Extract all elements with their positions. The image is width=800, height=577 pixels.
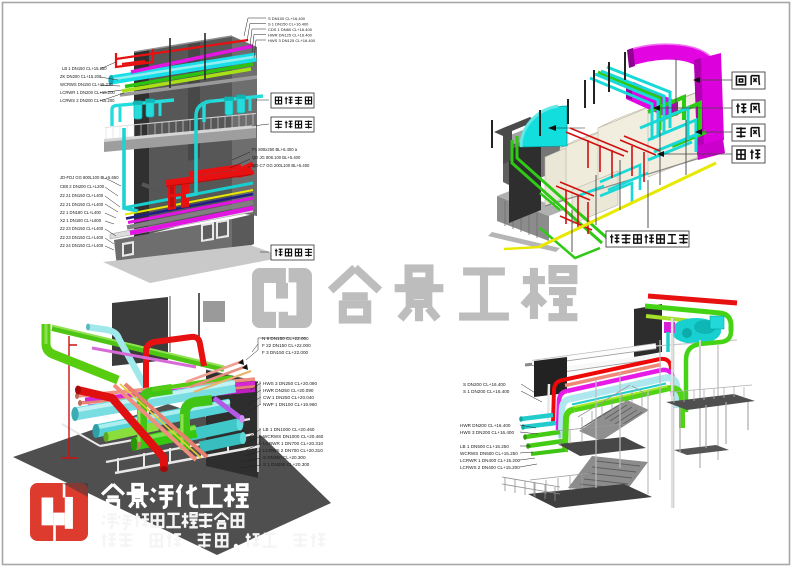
svg-text:LCRWR 1 DN400 CL+15.200: LCRWR 1 DN400 CL+15.200 (460, 458, 520, 463)
svg-text:HWS 3 DN200 CL+16.400: HWS 3 DN200 CL+16.400 (460, 430, 514, 435)
svg-text:WCRWS DN1000 CL+20.460: WCRWS DN1000 CL+20.460 (263, 434, 324, 439)
svg-text:S DN100 CL+16.400: S DN100 CL+16.400 (268, 16, 306, 21)
svg-text:JD-FDJ GG 800L100 BL+5.650: JD-FDJ GG 800L100 BL+5.650 (60, 175, 119, 180)
svg-text:HWS 3 DN250 CL+20.090: HWS 3 DN250 CL+20.090 (263, 381, 317, 386)
svg-text:CW 1 DN250 CL+20.040: CW 1 DN250 CL+20.040 (263, 395, 314, 400)
svg-text:S 1 DN150 CL+16.400: S 1 DN150 CL+16.400 (268, 22, 309, 27)
svg-text:LB 1 DN500 CL+15.250: LB 1 DN500 CL+15.250 (460, 444, 509, 449)
svg-text:Z2 1 DN180 CL+L400: Z2 1 DN180 CL+L400 (60, 210, 102, 215)
svg-text:F 3 DN150 CL+22.000: F 3 DN150 CL+22.000 (262, 350, 309, 355)
svg-text:X2 1 DN180 CL+L600: X2 1 DN180 CL+L600 (60, 218, 102, 223)
svg-text:LCRWR 1 DN200 CL+15.200: LCRWR 1 DN200 CL+15.200 (60, 90, 115, 95)
svg-text:P1 808x250 BL+6.400 a: P1 808x250 BL+6.400 a (252, 147, 298, 152)
svg-text:LCRWS 2 DN700 CL+20.310: LCRWS 2 DN700 CL+20.310 (263, 448, 323, 453)
svg-text:Z2 23 DN150 CL+L400: Z2 23 DN150 CL+L400 (60, 235, 104, 240)
svg-text:NWP 1 DN100 CL+19.960: NWP 1 DN100 CL+19.960 (263, 402, 317, 407)
svg-text:LCRWS 2 DN200 CL+15.200: LCRWS 2 DN200 CL+15.200 (60, 98, 115, 103)
svg-text:S 1 DN200 CL+16.400: S 1 DN200 CL+16.400 (463, 389, 510, 394)
svg-text:LB 1 DN150 CL+15.250: LB 1 DN150 CL+15.250 (62, 66, 107, 71)
svg-text:WCRWS DN150 CL+15.230: WCRWS DN150 CL+15.230 (60, 82, 113, 87)
svg-text:CDS 1 DN80 CL+16.400: CDS 1 DN80 CL+16.400 (268, 27, 313, 32)
svg-text:QD JG 808.100 BL+5.400: QD JG 808.100 BL+5.400 (252, 155, 301, 160)
svg-text:LCRWR 1 DN700 CL+20.310: LCRWR 1 DN700 CL+20.310 (263, 441, 323, 446)
svg-text:ZK DN200 CL+15.200: ZK DN200 CL+15.200 (60, 74, 102, 79)
svg-text:HWR DN125 CL+16.400: HWR DN125 CL+16.400 (268, 33, 313, 38)
svg-text:F 22 DN150 CL+22.000: F 22 DN150 CL+22.000 (262, 343, 311, 348)
svg-text:HWS 3 DN125 CL+16.400: HWS 3 DN125 CL+16.400 (268, 38, 316, 43)
svg-text:LCRWS 2 DN400 CL+15.200: LCRWS 2 DN400 CL+15.200 (460, 465, 520, 470)
svg-text:QD-C7 GG 200L100 BL+5.400: QD-C7 GG 200L100 BL+5.400 (252, 163, 310, 168)
svg-text:Z2 24 DN150 CL+L400: Z2 24 DN150 CL+L400 (60, 243, 104, 248)
svg-text:S 1 DN250 CL+20.300: S 1 DN250 CL+20.300 (263, 462, 310, 467)
svg-text:Z2 21 DN150 CL+L400: Z2 21 DN150 CL+L400 (60, 193, 104, 198)
svg-text:HWR DN250 CL+20.090: HWR DN250 CL+20.090 (263, 388, 314, 393)
svg-text:S DN350 CL+20.300: S DN350 CL+20.300 (263, 455, 306, 460)
svg-text:HWR DN200 CL+16.400: HWR DN200 CL+16.400 (460, 423, 511, 428)
svg-text:LB 1 DN1000 CL+20.460: LB 1 DN1000 CL+20.460 (263, 427, 315, 432)
svg-text:S DN200 CL+16.400: S DN200 CL+16.400 (463, 382, 506, 387)
svg-text:CB0 2 DN200 CL+L200: CB0 2 DN200 CL+L200 (60, 184, 105, 189)
svg-text:N 9 DN150 CL+22.000: N 9 DN150 CL+22.000 (262, 336, 309, 341)
svg-text:WCRWS DN500 CL+15.250: WCRWS DN500 CL+15.250 (460, 451, 518, 456)
svg-text:Z2 21 DN150 CL+L400: Z2 21 DN150 CL+L400 (60, 202, 104, 207)
svg-text:Z2 23 DN150 CL+L400: Z2 23 DN150 CL+L400 (60, 226, 104, 231)
